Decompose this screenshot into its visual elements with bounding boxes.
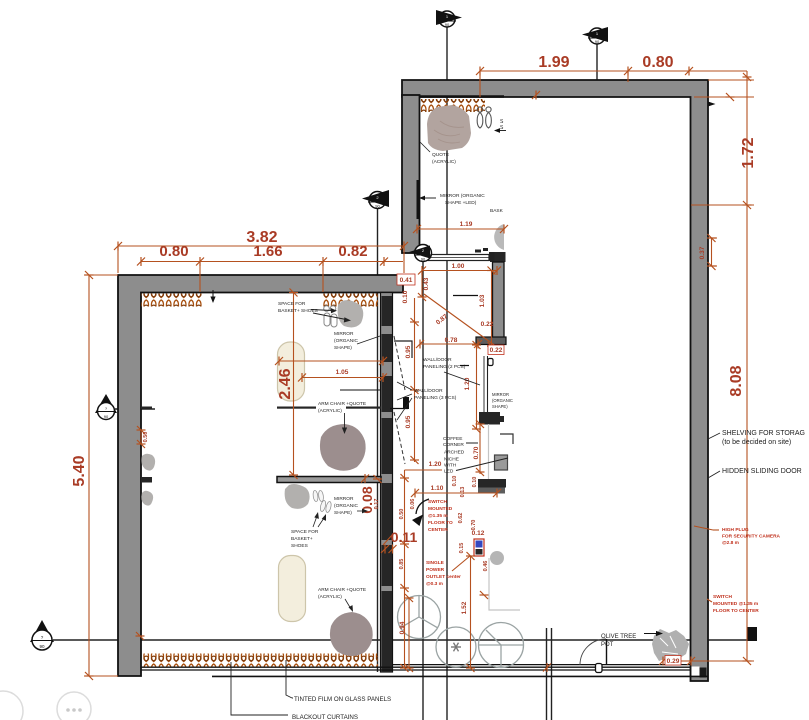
svg-text:(ORGANIC: (ORGANIC bbox=[334, 338, 359, 344]
svg-text:0.41: 0.41 bbox=[400, 277, 413, 284]
svg-text:5.40: 5.40 bbox=[71, 455, 88, 486]
svg-text:FLOOR TO: FLOOR TO bbox=[428, 520, 453, 526]
svg-text:SWITCH: SWITCH bbox=[428, 499, 447, 505]
svg-text:0.06: 0.06 bbox=[410, 499, 416, 510]
svg-text:0.17: 0.17 bbox=[374, 499, 380, 510]
svg-text:ARM CHAIR +QUOTE: ARM CHAIR +QUOTE bbox=[318, 401, 366, 407]
svg-text:90: 90 bbox=[421, 257, 426, 262]
svg-text:HIGH PLUG: HIGH PLUG bbox=[722, 527, 749, 533]
svg-text:0.10: 0.10 bbox=[452, 476, 458, 487]
svg-text:1.10: 1.10 bbox=[431, 485, 444, 492]
svg-text:2.46: 2.46 bbox=[277, 368, 294, 399]
svg-text:0.50: 0.50 bbox=[399, 509, 405, 520]
svg-text:0.11: 0.11 bbox=[391, 529, 418, 545]
svg-text:90: 90 bbox=[595, 39, 600, 44]
svg-text:0.70: 0.70 bbox=[471, 520, 477, 531]
svg-text:1.00: 1.00 bbox=[452, 263, 465, 270]
svg-text:0.10: 0.10 bbox=[402, 290, 409, 303]
svg-text:0.13: 0.13 bbox=[460, 487, 466, 498]
svg-text:SPACE FOR: SPACE FOR bbox=[291, 529, 319, 535]
svg-text:0.43: 0.43 bbox=[423, 277, 430, 290]
svg-text:(ORGANIC: (ORGANIC bbox=[334, 503, 359, 509]
svg-text:POWER: POWER bbox=[426, 567, 445, 573]
svg-text:BLACKOUT CURTAINS: BLACKOUT CURTAINS bbox=[292, 714, 358, 720]
svg-text:0.85: 0.85 bbox=[399, 559, 405, 570]
svg-text:MIRROR: MIRROR bbox=[334, 496, 354, 502]
svg-text:MIRROR: MIRROR bbox=[492, 392, 509, 397]
svg-text:1.19: 1.19 bbox=[460, 221, 473, 228]
svg-text:PANELING (3 PCS): PANELING (3 PCS) bbox=[414, 395, 457, 401]
svg-text:PANELING (2 PCS): PANELING (2 PCS) bbox=[423, 364, 466, 370]
svg-text:(ACRYLIC): (ACRYLIC) bbox=[318, 408, 342, 414]
svg-text:0.46: 0.46 bbox=[483, 561, 489, 572]
svg-text:LED: LED bbox=[444, 469, 454, 475]
svg-text:0.70: 0.70 bbox=[473, 446, 480, 459]
svg-text:BASK: BASK bbox=[490, 208, 504, 214]
svg-text:WALL/DOOR: WALL/DOOR bbox=[414, 388, 443, 394]
svg-text:1.20: 1.20 bbox=[429, 461, 442, 468]
svg-text:90: 90 bbox=[445, 22, 450, 27]
svg-text:SHOES: SHOES bbox=[291, 543, 308, 549]
svg-text:0.15: 0.15 bbox=[459, 543, 465, 554]
svg-text:1.99: 1.99 bbox=[538, 54, 569, 71]
svg-text:NICHE: NICHE bbox=[444, 457, 459, 463]
svg-text:0.37: 0.37 bbox=[699, 246, 706, 259]
svg-text:90: 90 bbox=[104, 414, 109, 419]
svg-text:0.80: 0.80 bbox=[642, 54, 673, 71]
svg-text:SHAPE): SHAPE) bbox=[334, 345, 352, 351]
svg-text:HIDDEN SLIDING DOOR: HIDDEN SLIDING DOOR bbox=[722, 468, 802, 475]
svg-text:0.10: 0.10 bbox=[472, 477, 478, 488]
svg-text:@2.8 m: @2.8 m bbox=[722, 540, 739, 546]
svg-text:0.62: 0.62 bbox=[458, 513, 464, 524]
svg-text:(ORGANIC: (ORGANIC bbox=[492, 398, 513, 403]
svg-text:CORNER: CORNER bbox=[443, 442, 464, 448]
svg-text:MIRROR: MIRROR bbox=[334, 331, 354, 337]
svg-text:MOUNTED: MOUNTED bbox=[428, 506, 453, 512]
svg-text:1.66: 1.66 bbox=[253, 243, 282, 260]
svg-text:0.94: 0.94 bbox=[399, 621, 406, 634]
svg-text:SHELVING FOR STORAG: SHELVING FOR STORAG bbox=[722, 430, 805, 437]
svg-text:@1.35 m: @1.35 m bbox=[428, 513, 448, 519]
svg-text:0.22: 0.22 bbox=[481, 321, 494, 328]
svg-text:0.29: 0.29 bbox=[667, 658, 680, 665]
svg-text:SWITCH: SWITCH bbox=[713, 594, 732, 600]
svg-text:0.95: 0.95 bbox=[405, 345, 412, 358]
svg-text:(to be decided on site): (to be decided on site) bbox=[722, 439, 791, 446]
svg-text:0.50: 0.50 bbox=[143, 432, 149, 443]
svg-text:SPACE FOR: SPACE FOR bbox=[278, 301, 306, 307]
svg-text:OLIVE TREE: OLIVE TREE bbox=[601, 634, 636, 640]
svg-text:OUTLET center: OUTLET center bbox=[426, 574, 461, 580]
svg-text:1.03: 1.03 bbox=[479, 294, 486, 307]
svg-text:0.22: 0.22 bbox=[490, 347, 503, 354]
svg-text:POT: POT bbox=[601, 642, 614, 648]
svg-text:0.80: 0.80 bbox=[159, 243, 188, 260]
svg-text:1.72: 1.72 bbox=[740, 137, 757, 168]
svg-text:(ACRYLIC): (ACRYLIC) bbox=[432, 159, 456, 165]
svg-text:(ACRYLIC): (ACRYLIC) bbox=[318, 594, 342, 600]
svg-text:QUOTE: QUOTE bbox=[432, 152, 449, 158]
svg-text:ARCHED: ARCHED bbox=[444, 450, 465, 456]
svg-text:0.82: 0.82 bbox=[338, 243, 367, 260]
svg-text:SHAPE): SHAPE) bbox=[334, 510, 352, 516]
svg-text:MIRROR (ORGANIC: MIRROR (ORGANIC bbox=[440, 193, 485, 199]
svg-text:ARM CHAIR +QUOTE: ARM CHAIR +QUOTE bbox=[318, 587, 366, 593]
svg-text:90: 90 bbox=[39, 644, 45, 649]
svg-text:SINGLE: SINGLE bbox=[426, 560, 445, 566]
svg-text:CENTER: CENTER bbox=[428, 527, 448, 533]
svg-text:@0.3 m: @0.3 m bbox=[426, 581, 443, 587]
svg-text:0.08: 0.08 bbox=[359, 486, 375, 513]
svg-text:COFFEE: COFFEE bbox=[443, 436, 462, 442]
svg-text:FLOOR TO CENTER: FLOOR TO CENTER bbox=[713, 608, 759, 614]
svg-text:MOUNTED @1.35 m: MOUNTED @1.35 m bbox=[713, 601, 758, 607]
svg-text:FOR SECURITY CAMERA: FOR SECURITY CAMERA bbox=[722, 534, 781, 540]
svg-text:TINTED FILM ON GLASS PANELS: TINTED FILM ON GLASS PANELS bbox=[294, 696, 391, 703]
svg-text:BASKET+: BASKET+ bbox=[291, 536, 313, 542]
svg-text:1.05: 1.05 bbox=[336, 369, 349, 376]
svg-text:90: 90 bbox=[375, 204, 380, 209]
svg-text:1.52: 1.52 bbox=[461, 601, 468, 614]
svg-text:0.78: 0.78 bbox=[445, 337, 458, 344]
svg-text:0.95: 0.95 bbox=[405, 415, 412, 428]
svg-text:WALL/DOOR: WALL/DOOR bbox=[423, 357, 452, 363]
svg-text:WITH: WITH bbox=[444, 463, 457, 469]
svg-text:SHAPE): SHAPE) bbox=[492, 404, 508, 409]
svg-text:SHAPE +LED): SHAPE +LED) bbox=[445, 200, 477, 206]
svg-text:8.08: 8.08 bbox=[728, 365, 745, 396]
svg-text:BASKET+ SHOES: BASKET+ SHOES bbox=[278, 308, 318, 314]
